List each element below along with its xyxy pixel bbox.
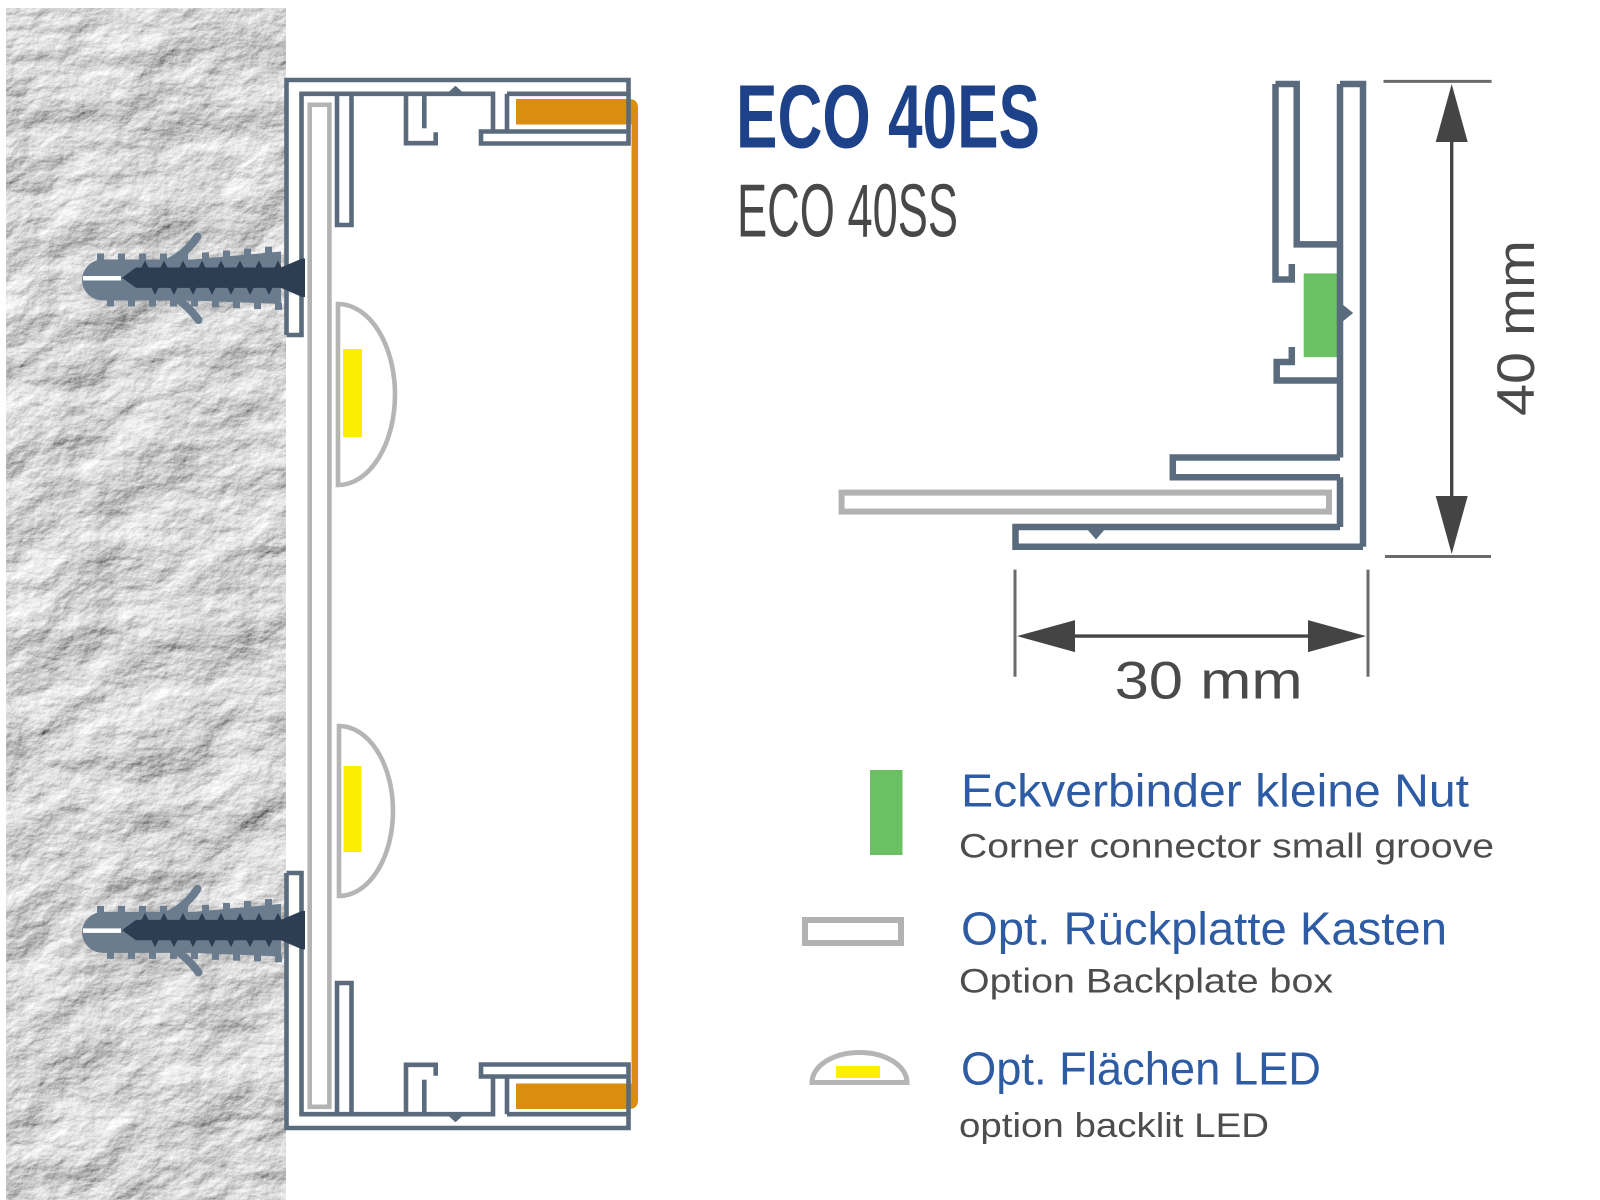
svg-text:Option Backplate box: Option Backplate box (959, 963, 1333, 1001)
svg-text:Opt. Rückplatte Kasten: Opt. Rückplatte Kasten (961, 902, 1447, 954)
svg-text:ECO 40ES: ECO 40ES (736, 68, 1040, 168)
svg-text:Opt. Flächen LED: Opt. Flächen LED (961, 1043, 1321, 1095)
svg-text:Corner connector small groove: Corner connector small groove (959, 828, 1494, 866)
svg-text:40 mm: 40 mm (1487, 240, 1546, 416)
svg-text:ECO 40SS: ECO 40SS (737, 169, 958, 253)
svg-text:30 mm: 30 mm (1115, 652, 1303, 711)
svg-text:option backlit LED: option backlit LED (959, 1107, 1269, 1145)
svg-text:Eckverbinder kleine Nut: Eckverbinder kleine Nut (961, 765, 1469, 817)
